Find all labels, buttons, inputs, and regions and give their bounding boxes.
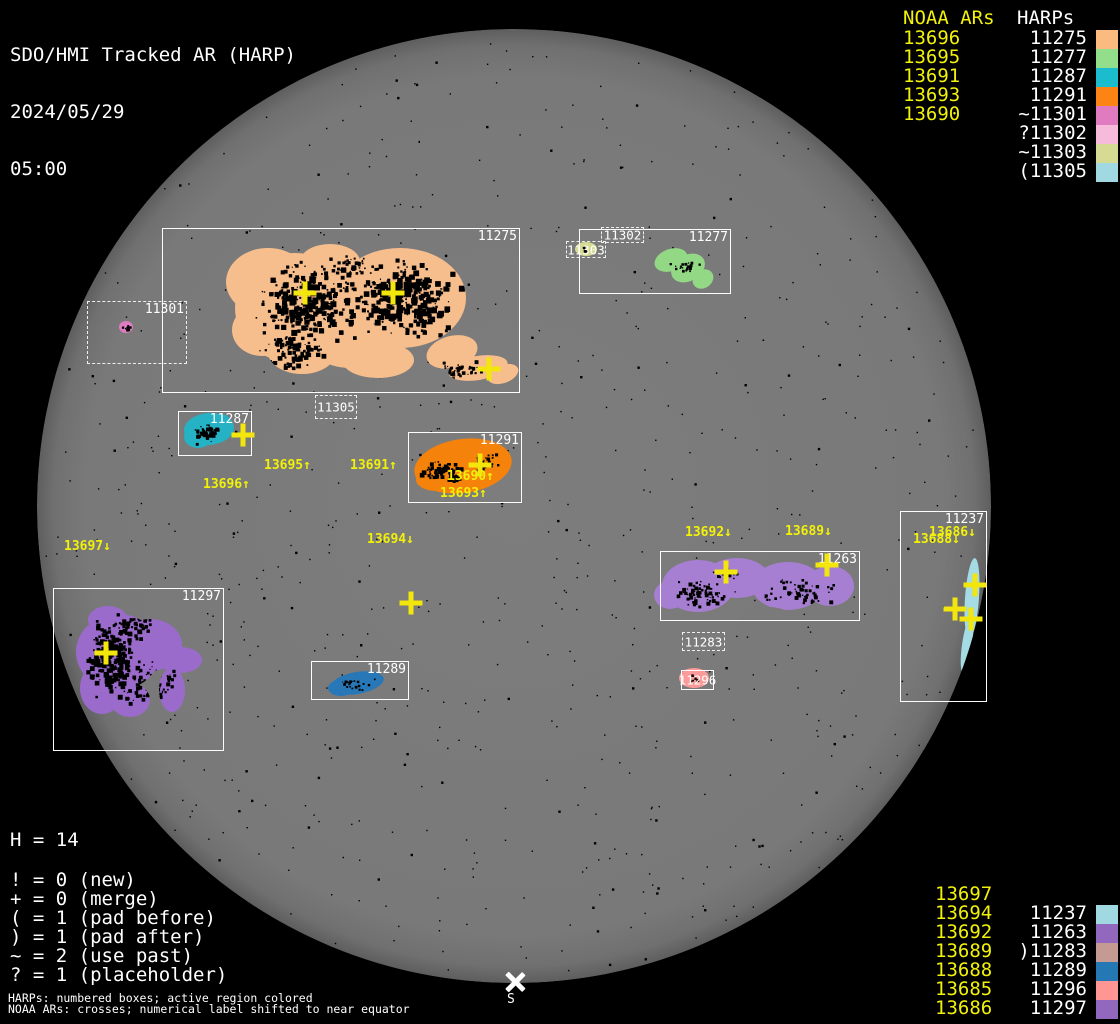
noaa-cross-icon	[232, 424, 255, 447]
south-pole-label: S	[507, 992, 515, 1007]
noaa-cross-icon	[469, 454, 492, 477]
noaa-ar-number: 13690	[903, 105, 960, 124]
harp-color-swatch	[1096, 87, 1118, 106]
harp-color-swatch	[1096, 68, 1118, 87]
noaa-ar-label: 13691↑	[350, 459, 397, 473]
harp-color-swatch	[1096, 49, 1118, 68]
harp-color-swatch	[1096, 905, 1118, 924]
harp-box-11301: 11301	[87, 301, 187, 364]
harp-box-label: 11302	[604, 229, 642, 242]
harp-box-label: 11283	[685, 635, 723, 648]
harp-box-11305: 11305	[315, 395, 357, 419]
harp-box-label: 11296	[679, 674, 717, 687]
solar-disk-view: 1127511301113051128711291112771130211303…	[0, 0, 1120, 1024]
symbol-legend: ! = 0 (new)+ = 0 (merge)( = 1 (pad befor…	[10, 871, 227, 985]
noaa-cross-icon	[294, 282, 317, 305]
harp-color-swatch	[1096, 962, 1118, 981]
legend-top-right-rows: 1369611275136951127713691112871369311291…	[903, 29, 1087, 181]
noaa-ar-label: 13689↓	[785, 525, 832, 539]
noaa-cross-icon	[478, 358, 501, 381]
noaa-ar-label: 13692↓	[685, 526, 732, 540]
harp-color-swatch	[1096, 144, 1118, 163]
harp-box-label: 11275	[478, 230, 517, 243]
harp-number: (11305	[1018, 162, 1087, 181]
harp-box-label: 11305	[317, 401, 355, 414]
footnote-noaa: NOAA ARs: crosses; numerical label shift…	[8, 1004, 410, 1015]
noaa-cross-icon	[964, 574, 987, 597]
observation-time: 05:00	[10, 160, 296, 179]
legend-bottom-right-rows: 136971369411237136921126313689)112831368…	[935, 885, 1087, 1018]
harp-number: 11297	[1030, 999, 1087, 1018]
noaa-ar-label: 13697↓	[64, 540, 111, 554]
observation-date: 2024/05/29	[10, 103, 296, 122]
south-pole-marker-icon	[503, 970, 527, 994]
legend-row: (11305	[903, 162, 1087, 181]
harp-box-11275: 11275	[162, 228, 520, 393]
harp-color-swatch	[1096, 106, 1118, 125]
harp-color-swatch	[1096, 30, 1118, 49]
header-block: SDO/HMI Tracked AR (HARP) 2024/05/29 05:…	[10, 8, 296, 217]
noaa-ar-label: 13688↓	[913, 533, 960, 547]
noaa-ar-label: 13696↑	[203, 478, 250, 492]
harp-box-11303: 11303	[566, 241, 606, 258]
harp-box-label: 11277	[689, 231, 728, 244]
harp-color-swatch	[1096, 1000, 1118, 1019]
harp-box-label: 11289	[367, 663, 406, 676]
noaa-cross-icon	[382, 282, 405, 305]
noaa-cross-icon	[400, 592, 423, 615]
legend-row: 1368611297	[935, 999, 1087, 1018]
harp-color-swatch	[1096, 981, 1118, 1000]
app-title: SDO/HMI Tracked AR (HARP)	[10, 46, 296, 65]
harp-box-label: 11303	[567, 243, 605, 256]
harp-color-swatch	[1096, 924, 1118, 943]
symbol-legend-line: ? = 1 (placeholder)	[10, 966, 227, 985]
noaa-ars-header: NOAA ARs	[903, 9, 995, 28]
noaa-cross-icon	[715, 561, 738, 584]
harp-box-11302: 11302	[601, 227, 644, 243]
noaa-cross-icon	[960, 608, 983, 631]
noaa-ar-label: 13694↓	[367, 533, 414, 547]
harp-color-swatch	[1096, 163, 1118, 182]
noaa-ar-label: 13695↑	[264, 459, 311, 473]
noaa-ar-label: 13693↑	[440, 487, 487, 501]
noaa-cross-icon	[816, 554, 839, 577]
harp-box-11283: 11283	[682, 632, 725, 651]
harp-box-11296: 11296	[681, 670, 714, 690]
harp-box-label: 11297	[182, 590, 221, 603]
harp-box-11289: 11289	[311, 661, 409, 700]
harp-color-swatch	[1096, 943, 1118, 962]
harp-box-11297: 11297	[53, 588, 224, 751]
noaa-ar-number: 13686	[935, 999, 992, 1018]
harp-box-label: 11291	[480, 434, 519, 447]
harp-count-line: H = 14	[10, 831, 79, 850]
noaa-cross-icon	[95, 642, 118, 665]
harps-header: HARPs	[1017, 9, 1074, 28]
harp-box-label: 11301	[145, 303, 184, 316]
harp-color-swatch	[1096, 125, 1118, 144]
